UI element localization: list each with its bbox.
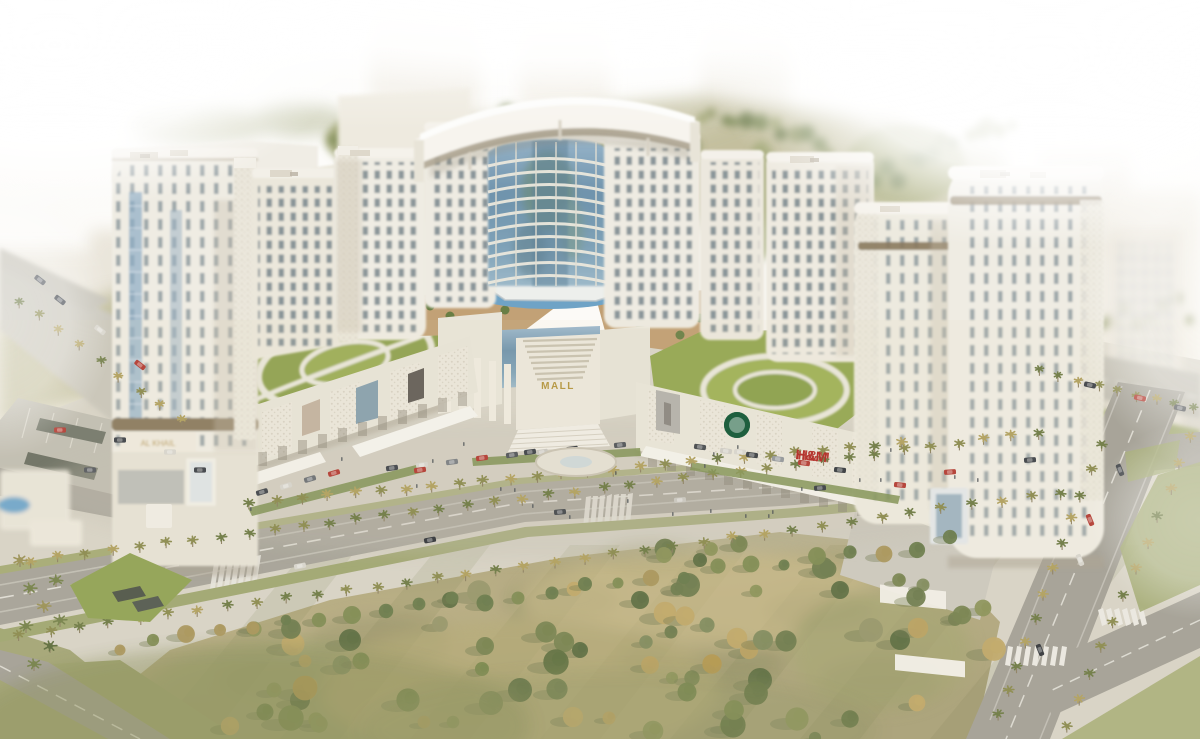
svg-text:H&M: H&M	[795, 446, 828, 465]
